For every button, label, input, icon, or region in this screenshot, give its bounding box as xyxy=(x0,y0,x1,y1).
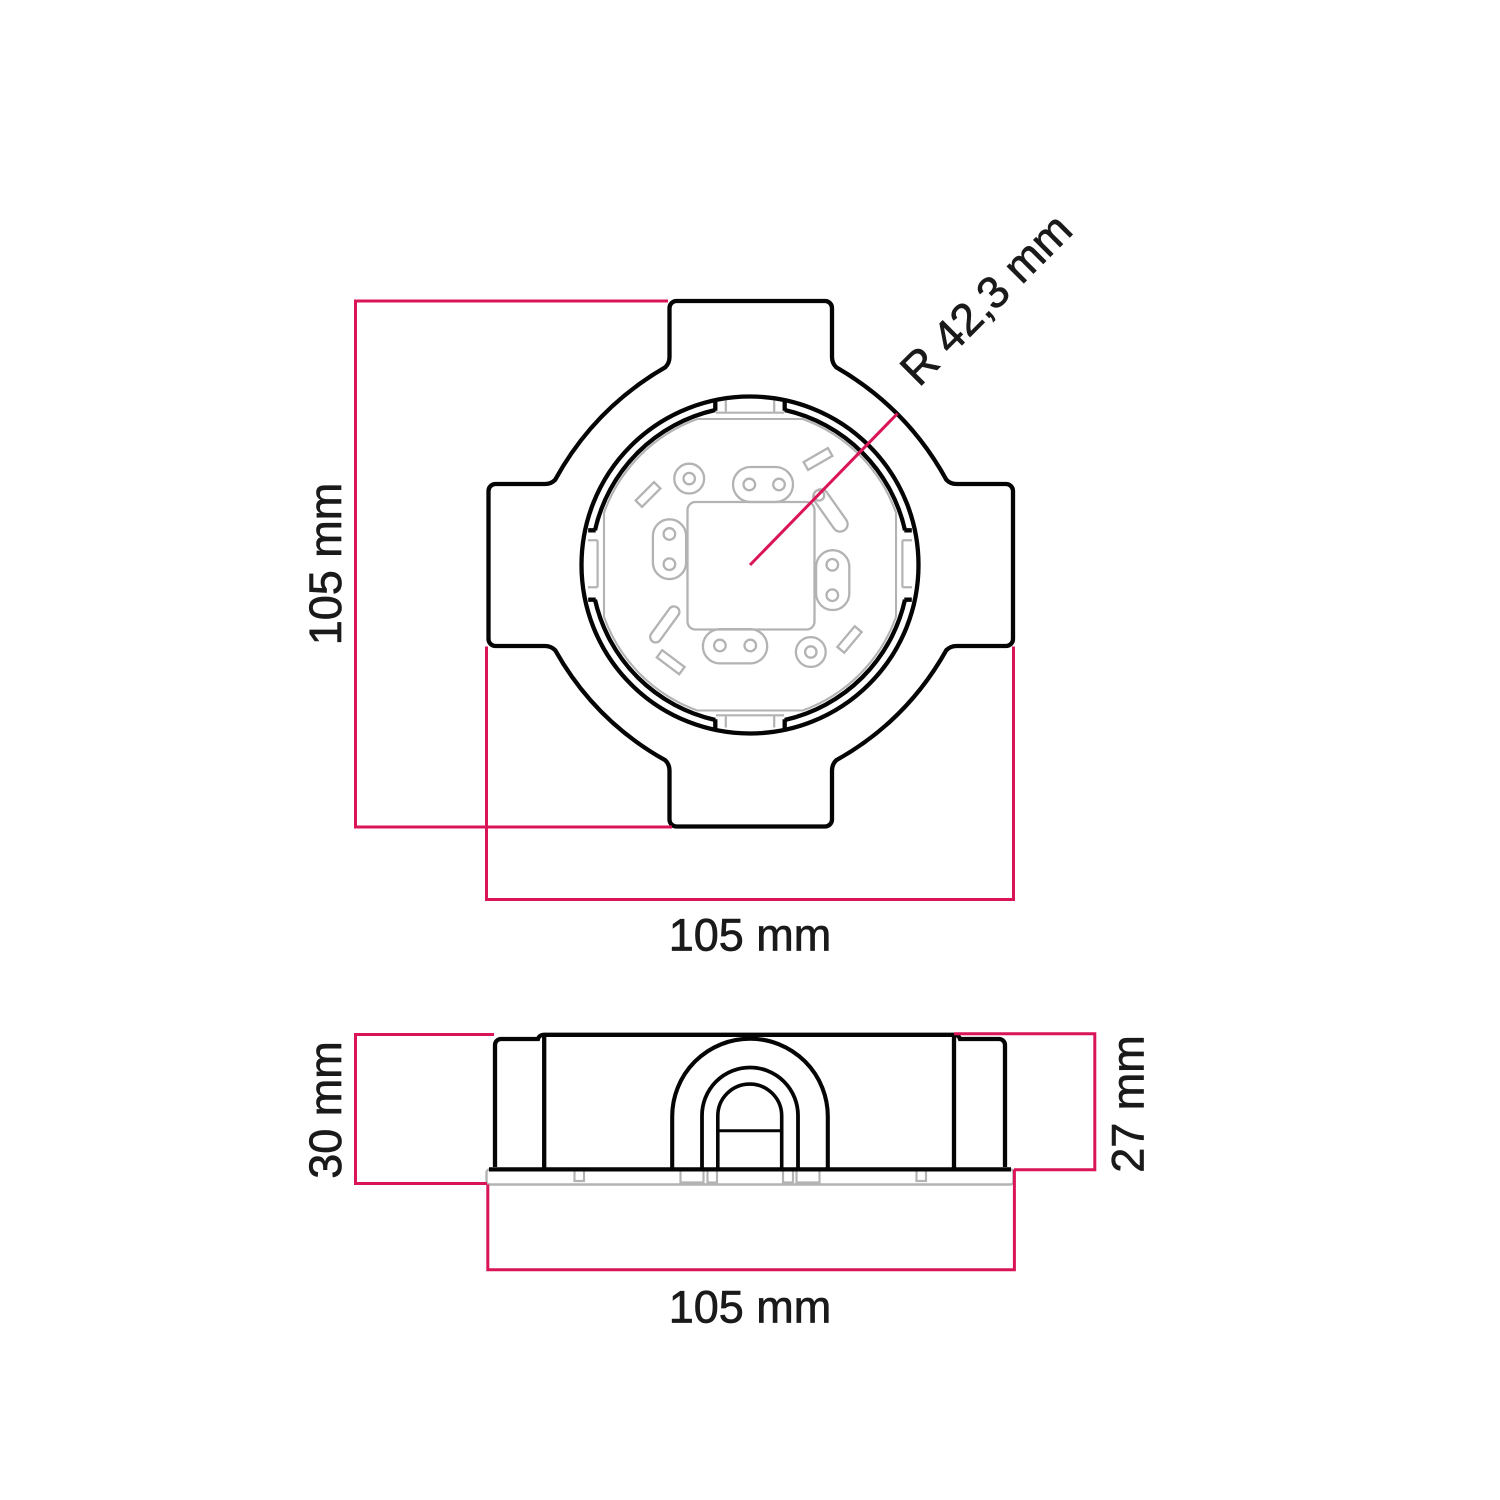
svg-text:30 mm: 30 mm xyxy=(300,1041,351,1179)
svg-text:105 mm: 105 mm xyxy=(300,483,351,646)
svg-text:105 mm: 105 mm xyxy=(669,910,832,961)
svg-text:105 mm: 105 mm xyxy=(669,1282,832,1333)
svg-text:27 mm: 27 mm xyxy=(1103,1035,1154,1173)
